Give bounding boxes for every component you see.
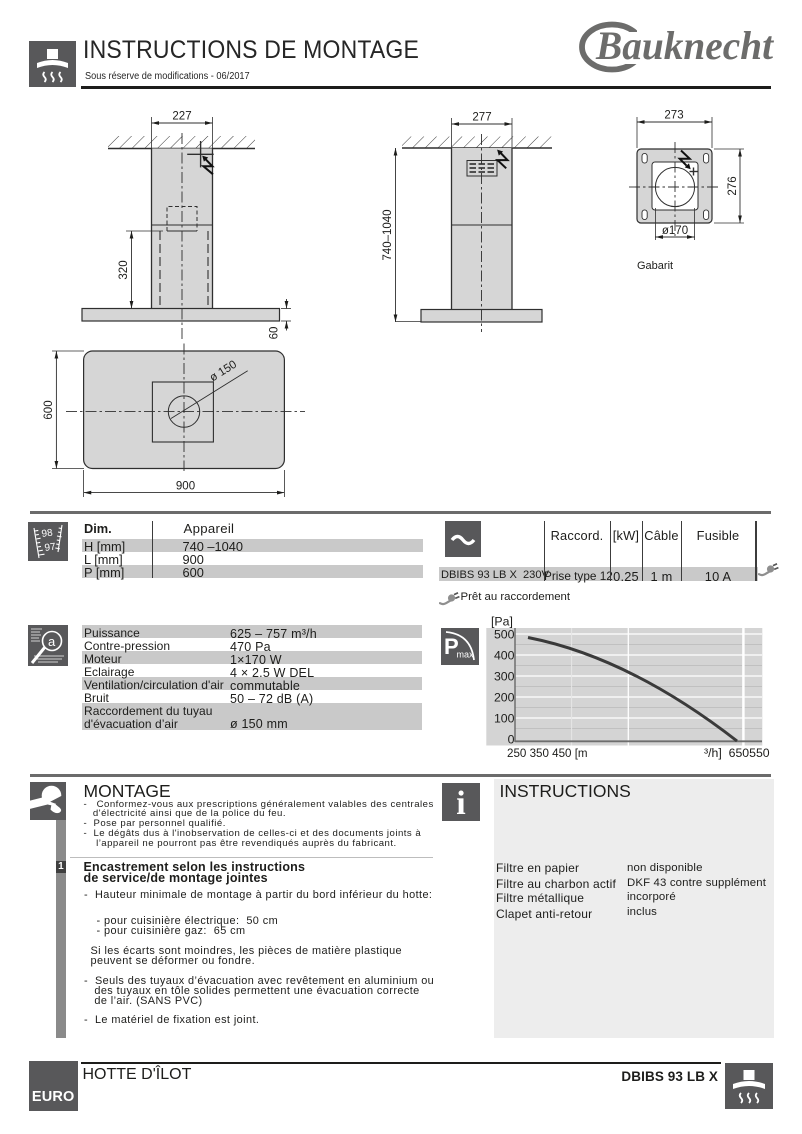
svg-text:i: i — [456, 785, 465, 821]
svg-text:0: 0 — [508, 733, 515, 747]
svg-text:250 350 450 [m: 250 350 450 [m — [507, 747, 588, 760]
svg-text:277: 277 — [472, 112, 491, 124]
svg-text:227: 227 — [172, 111, 191, 123]
svg-text:900: 900 — [176, 481, 195, 493]
svg-text:ø170: ø170 — [662, 225, 688, 237]
svg-text:320: 320 — [118, 260, 130, 279]
svg-text:Gabarit: Gabarit — [637, 260, 673, 272]
svg-text:[Pa]: [Pa] — [491, 615, 513, 629]
svg-text:273: 273 — [664, 110, 683, 122]
svg-text:300: 300 — [494, 670, 515, 684]
svg-text:60: 60 — [269, 327, 281, 340]
svg-text:98: 98 — [41, 527, 54, 540]
svg-text:100: 100 — [494, 712, 515, 726]
svg-text:600: 600 — [43, 400, 55, 419]
svg-text:740–1040: 740–1040 — [382, 209, 394, 260]
svg-text:a: a — [48, 634, 56, 649]
svg-text:276: 276 — [727, 176, 739, 195]
svg-text:Bauknecht: Bauknecht — [595, 23, 775, 68]
svg-text:400: 400 — [494, 649, 515, 663]
svg-text:500: 500 — [494, 628, 515, 642]
svg-text:200: 200 — [494, 691, 515, 705]
svg-text:³/h] 650550: ³/h] 650550 — [704, 746, 770, 760]
svg-text:97: 97 — [44, 541, 57, 554]
